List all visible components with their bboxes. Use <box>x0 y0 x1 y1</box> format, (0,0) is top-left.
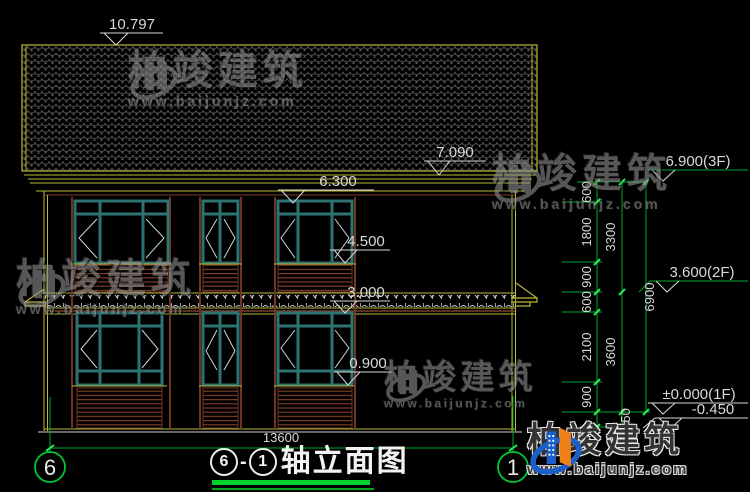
base-panels-1f <box>72 386 354 428</box>
axis-bubble-left-label: 6 <box>44 455 56 480</box>
level-3f: 6.900(3F) <box>665 153 730 170</box>
drawing-title: 6 - 1 轴立面图 <box>210 447 409 477</box>
dim-1800: 1800 <box>579 218 594 247</box>
cad-elevation-drawing: 10.797 7.090 6.300 4.500 3.000 0.900 6.9… <box>0 0 750 492</box>
brand-logo-color-icon <box>527 423 585 479</box>
dim-2100: 2100 <box>579 333 594 362</box>
title-axis-start: 6 <box>210 448 238 476</box>
dim-6900: 6900 <box>642 283 657 312</box>
title-text: 轴立面图 <box>281 447 409 477</box>
eave-trim <box>22 171 538 195</box>
dim-600b: 600 <box>579 291 594 313</box>
dim-eave: 6.300 <box>319 173 357 190</box>
window-1f-right <box>278 313 352 385</box>
window-2f-right <box>278 201 352 263</box>
title-separator: - <box>240 451 247 474</box>
title-underline-thin <box>212 488 374 490</box>
title-underline-thick <box>212 480 370 485</box>
spandrel-2f <box>71 264 356 292</box>
dim-900b: 900 <box>579 386 594 408</box>
window-1f-left <box>77 313 162 385</box>
level-2f: 3.600(2F) <box>669 264 734 281</box>
dim-600a: 600 <box>579 181 594 203</box>
floor-band <box>45 293 515 314</box>
window-2f-left <box>75 201 168 263</box>
drawing-canvas: 10.797 7.090 6.300 4.500 3.000 0.900 6.9… <box>0 0 750 492</box>
wall-bracket-right <box>511 283 537 306</box>
dim-total-width: 13600 <box>263 430 299 445</box>
dim-3300: 3300 <box>603 223 618 252</box>
dim-ridge: 10.797 <box>109 16 155 33</box>
dim-900a: 900 <box>579 266 594 288</box>
dim-sill-1f: 0.900 <box>349 355 387 372</box>
dim-3600: 3600 <box>603 338 618 367</box>
axis-bubble-right-label: 1 <box>507 455 519 480</box>
title-axis-end: 1 <box>249 448 277 476</box>
dim-sill-2f: 4.500 <box>347 233 385 250</box>
wall-bracket-left <box>25 289 46 306</box>
window-1f-middle <box>203 313 238 385</box>
dim-chain-lines <box>562 182 650 427</box>
brand-footer: 柏竣建筑 www.baijunjz.com <box>527 423 688 478</box>
level-ground: -0.450 <box>692 401 735 418</box>
dim-head-1f: 3.000 <box>347 284 385 301</box>
window-2f-middle <box>203 201 238 263</box>
dim-roof-edge: 7.090 <box>436 144 474 161</box>
